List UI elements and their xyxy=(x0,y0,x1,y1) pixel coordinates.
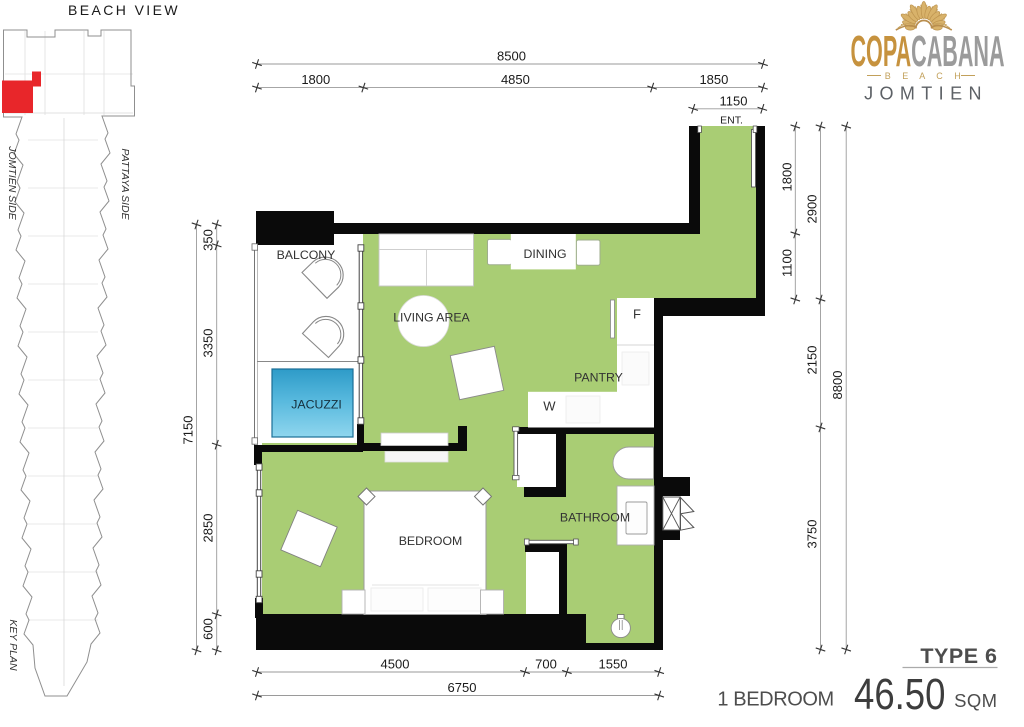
svg-text:1850: 1850 xyxy=(699,72,728,87)
svg-text:4850: 4850 xyxy=(501,72,530,87)
svg-text:COPACABANA: COPACABANA xyxy=(851,28,1005,76)
svg-text:ENT.: ENT. xyxy=(720,115,743,127)
svg-text:1800: 1800 xyxy=(779,163,794,192)
svg-text:JACUZZI: JACUZZI xyxy=(291,398,342,412)
svg-text:JOMTIEN SIDE: JOMTIEN SIDE xyxy=(6,145,18,221)
svg-text:PATTAYA SIDE: PATTAYA SIDE xyxy=(119,148,131,220)
svg-text:1150: 1150 xyxy=(720,93,748,108)
svg-text:8500: 8500 xyxy=(497,49,526,64)
svg-text:BEACH VIEW: BEACH VIEW xyxy=(68,2,180,18)
svg-text:KEY PLAN: KEY PLAN xyxy=(7,619,19,671)
svg-text:2900: 2900 xyxy=(805,195,820,224)
svg-text:4500: 4500 xyxy=(381,657,410,672)
svg-text:F: F xyxy=(633,307,641,322)
svg-text:1100: 1100 xyxy=(779,249,794,277)
svg-text:46.50: 46.50 xyxy=(854,670,945,719)
svg-text:PANTRY: PANTRY xyxy=(574,371,623,385)
svg-text:BATHROOM: BATHROOM xyxy=(560,511,630,525)
svg-text:B E A C H: B E A C H xyxy=(885,71,966,81)
svg-text:1800: 1800 xyxy=(301,72,330,87)
svg-text:1550: 1550 xyxy=(599,657,628,672)
svg-text:DINING: DINING xyxy=(523,247,566,261)
svg-text:600: 600 xyxy=(201,618,216,640)
svg-text:1 BEDROOM: 1 BEDROOM xyxy=(717,689,833,711)
svg-text:7150: 7150 xyxy=(181,416,196,445)
svg-text:8800: 8800 xyxy=(830,371,845,400)
svg-text:700: 700 xyxy=(535,657,557,672)
svg-text:3350: 3350 xyxy=(201,329,216,358)
svg-text:6750: 6750 xyxy=(448,680,477,695)
svg-text:350: 350 xyxy=(201,229,216,251)
svg-text:BALCONY: BALCONY xyxy=(277,248,336,262)
svg-text:TYPE 6: TYPE 6 xyxy=(920,644,997,668)
svg-text:SQM: SQM xyxy=(954,690,997,711)
svg-text:LIVING AREA: LIVING AREA xyxy=(393,311,470,325)
svg-text:JOMTIEN: JOMTIEN xyxy=(864,84,988,104)
svg-text:W: W xyxy=(543,399,556,414)
svg-text:2150: 2150 xyxy=(805,346,820,375)
svg-text:3750: 3750 xyxy=(805,520,820,549)
svg-text:BEDROOM: BEDROOM xyxy=(399,534,463,548)
svg-text:2850: 2850 xyxy=(201,514,216,543)
